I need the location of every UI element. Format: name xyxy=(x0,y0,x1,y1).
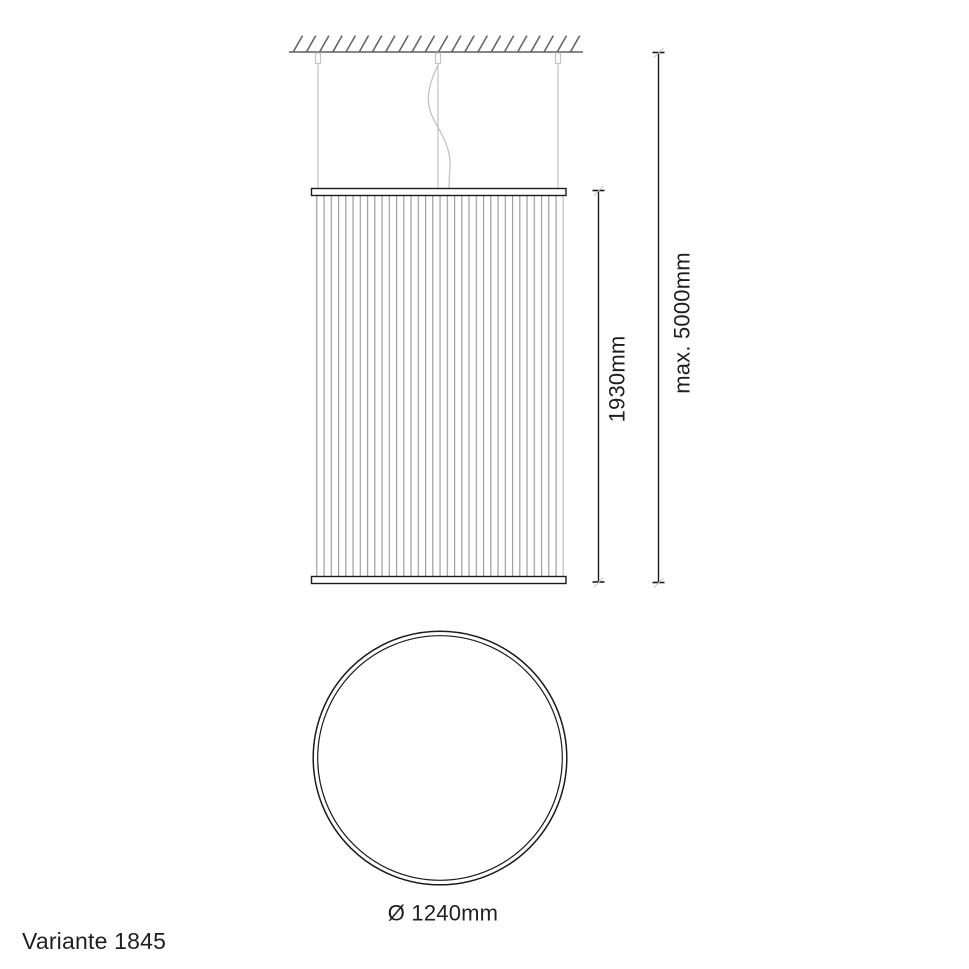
variant-label: Variante 1845 xyxy=(22,929,166,953)
suspension xyxy=(316,53,561,190)
diameter-label: Ø 1240mm xyxy=(388,901,498,924)
suspension-fitting-left xyxy=(316,53,321,64)
ceiling xyxy=(289,36,583,53)
lamp-front-view xyxy=(312,189,567,584)
suspension-fitting-center xyxy=(436,53,441,64)
suspension-fitting-right xyxy=(556,53,561,64)
shade-pleats xyxy=(316,196,564,578)
top-view-outer-ring xyxy=(313,631,567,885)
power-cord xyxy=(428,65,450,189)
technical-drawing-canvas: 1930mm max. 5000mm Ø 1240mm Variante 184… xyxy=(0,0,969,969)
suspension-dimension-label: max. 5000mm xyxy=(670,252,693,394)
ceiling-hatch xyxy=(292,36,582,53)
lamp-top-view xyxy=(313,631,567,885)
height-dimension-line xyxy=(593,186,605,587)
suspension-dimension-line xyxy=(653,48,665,588)
shade-bottom-cap xyxy=(312,577,567,584)
height-dimension-label: 1930mm xyxy=(605,336,628,423)
shade-top-cap xyxy=(312,189,567,196)
top-view-inner-ring xyxy=(318,636,563,881)
line-art xyxy=(0,0,969,969)
